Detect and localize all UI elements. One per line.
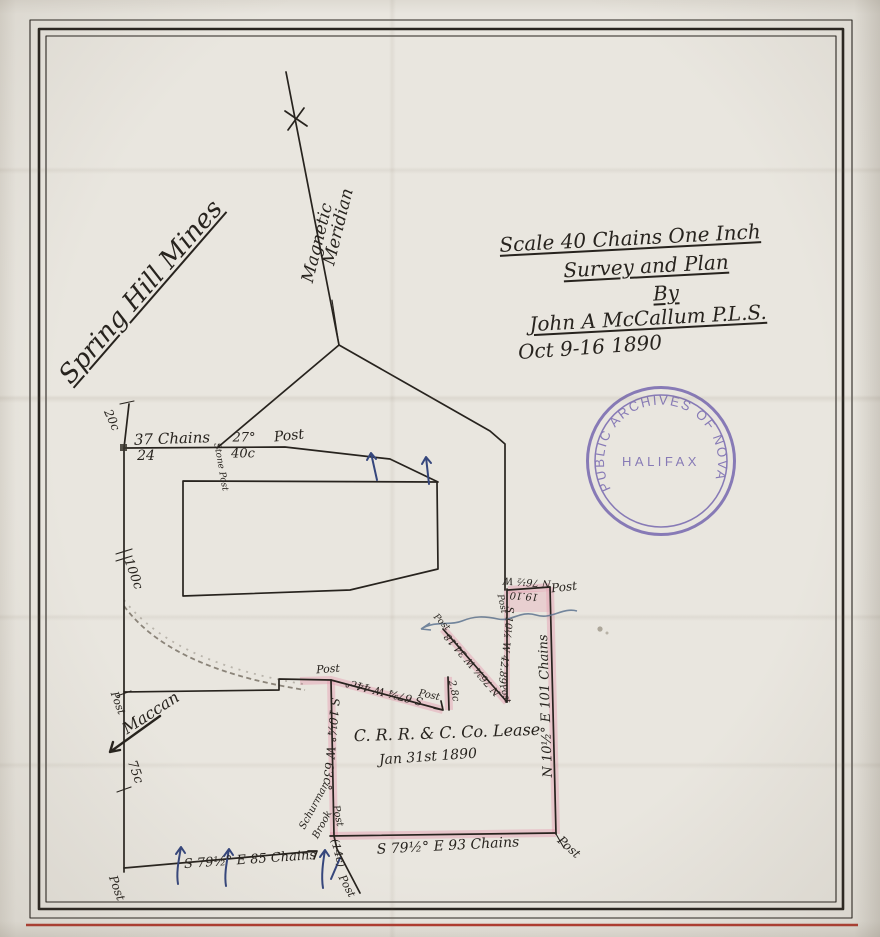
post-4289-bottom: Post [497, 683, 512, 704]
dist-37-chains: 37 Chains [134, 430, 211, 448]
annotations-layer: Spring Hill MinesMagneticMeridianScale 4… [0, 0, 880, 937]
bearing-63c: S 10¼° W 63c° [321, 697, 341, 791]
dist-75c: 75c [125, 759, 145, 786]
stone-post-label: Stone Post [211, 442, 228, 491]
angle-27: 27° [232, 432, 255, 445]
bearing-85-chains: S 79½° E 85 Chains [184, 849, 317, 871]
title-survey: Survey and Plan [563, 252, 729, 281]
title-date: Oct 9-16 1890 [517, 332, 662, 362]
post-west-bottom: Post [107, 874, 127, 902]
post-step: Post [316, 663, 340, 676]
post-top-line: Post [273, 427, 304, 444]
lease-date: Jan 31st 1890 [379, 747, 478, 768]
post-sw-diagonal: Post [337, 873, 358, 899]
bearing-4289: S 10½ W 42.89 [496, 606, 514, 684]
num-24: 24 [137, 449, 155, 463]
bearing-44c: S 67¾ W 44c° [344, 677, 424, 707]
dist-14c: (14c) [329, 838, 347, 869]
dist-2-8c: 2.8c [446, 679, 460, 702]
post-se: Post [555, 834, 582, 860]
lease-title: C. R. R. & C. Co. Lease [354, 722, 541, 745]
bearing-101-chains: N 10½° E 101 Chains [537, 634, 555, 777]
dist-20c: 20c [102, 408, 122, 433]
maccan-label: Maccan [120, 689, 182, 737]
title-by: By [652, 282, 679, 303]
post-west-lease: Post [330, 804, 344, 827]
post-3418-top: Post [431, 613, 451, 633]
post-west-mid: Post [109, 690, 127, 716]
dist-1910: 19.10 [509, 589, 538, 601]
bearing-93-chains: S 79½° E 93 Chains [376, 835, 519, 856]
spring-hill-mines-label: Spring Hill Mines [55, 195, 228, 388]
bearing-7612: N 76½ W [503, 574, 551, 587]
dist-100c: 100c [121, 557, 144, 592]
post-ne: Post [551, 580, 578, 595]
paper-sheet: PUBLIC ARCHIVES OF NOVA SCOTIA HALIFAX S… [0, 0, 880, 937]
title-surveyor: John A McCallum P.L.S. [529, 302, 767, 334]
dist-40c: 40c [231, 448, 255, 461]
